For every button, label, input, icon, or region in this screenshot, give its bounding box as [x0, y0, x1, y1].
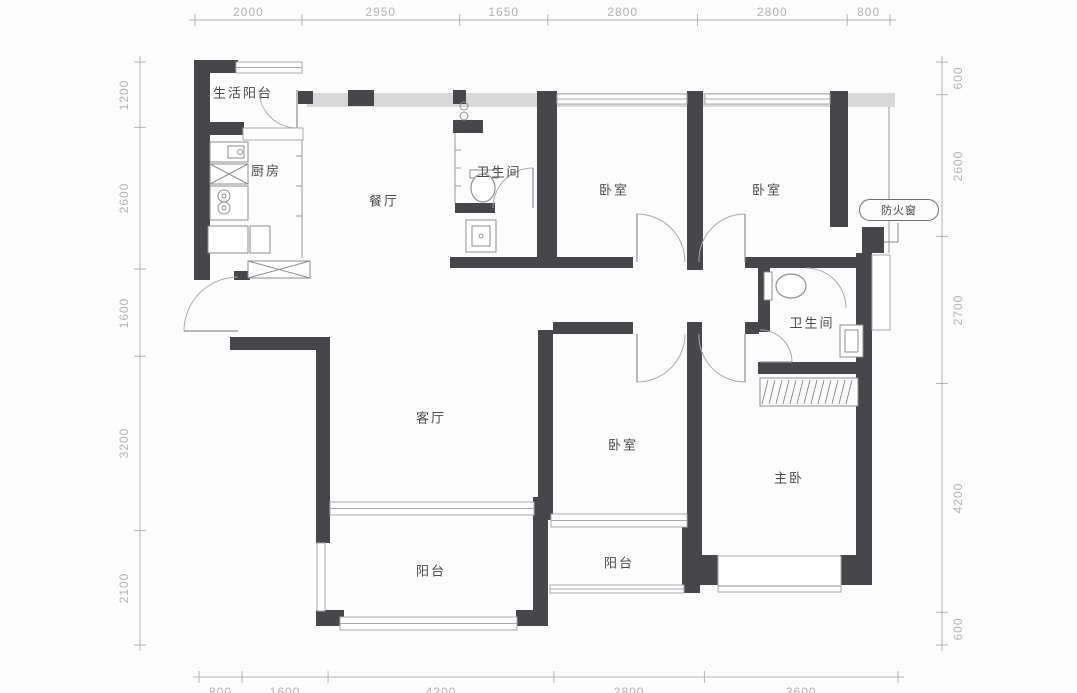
dimension-label-right: 2700: [951, 295, 965, 326]
wall-segment: [687, 91, 703, 270]
wall-segment: [688, 555, 718, 585]
wall-segment: [194, 60, 238, 73]
wall-segment: [840, 555, 872, 585]
fixture: [472, 226, 490, 246]
room-label-service-balcony: 生活阳台: [213, 83, 273, 102]
room-label-bedroom-3: 卧室: [608, 435, 638, 454]
wall-segment: [553, 322, 633, 334]
wall-segment: [537, 91, 557, 267]
wall-segment: [538, 330, 553, 520]
dimension-label-bottom: 800: [209, 685, 232, 693]
fixture: [845, 330, 858, 352]
room-label-kitchen: 厨房: [251, 161, 281, 180]
dimension-label-left: 2600: [117, 183, 131, 214]
dimension-label-top: 2950: [365, 5, 396, 19]
fire-window-annotation: 防火窗: [859, 199, 939, 221]
wall-segment: [450, 257, 633, 268]
floor-plan-drawing: [0, 0, 1077, 693]
fixture: [764, 272, 772, 300]
wall-segment: [533, 497, 548, 617]
dimension-label-bottom: 2800: [614, 685, 645, 693]
window: [243, 128, 303, 140]
room-label-living-room: 客厅: [416, 408, 446, 427]
room-label-balcony-1: 阳台: [416, 561, 446, 580]
dimension-label-top: 2800: [607, 5, 638, 19]
wall-segment: [745, 322, 759, 334]
fixture: [208, 226, 248, 253]
room-label-bedroom-1: 卧室: [599, 180, 629, 199]
room-label-bedroom-2: 卧室: [752, 180, 782, 199]
window: [317, 543, 325, 611]
dimension-label-left: 1200: [117, 79, 131, 110]
door-arc: [760, 330, 792, 362]
burner-circle: [460, 112, 468, 120]
dimension-label-top: 2000: [233, 5, 264, 19]
wall-segment: [830, 91, 848, 227]
wall-segment: [298, 91, 313, 104]
door-arc: [184, 277, 238, 331]
wall-segment: [862, 227, 884, 253]
door-arc: [699, 334, 745, 382]
wall-segment: [316, 337, 330, 497]
wall-segment: [455, 203, 495, 213]
dimension-label-left: 2100: [117, 572, 131, 603]
wall-segment: [758, 362, 872, 374]
room-label-master-bedroom: 主卧: [774, 468, 804, 487]
door-arc: [637, 214, 685, 262]
wall-segment: [687, 322, 702, 558]
fixture: [210, 186, 248, 220]
floor-plan: 生活阳台厨房餐厅卫生间卧室卧室卫生间客厅卧室主卧阳台阳台 20002950165…: [0, 0, 1077, 693]
wall-segment: [453, 120, 483, 133]
fire-window-leader: [884, 223, 898, 242]
dimension-label-right: 4200: [951, 483, 965, 514]
dimension-label-right: 600: [951, 617, 965, 640]
fixture: [250, 226, 270, 253]
room-label-dining-room: 餐厅: [369, 191, 399, 210]
dimension-label-top: 2800: [757, 5, 788, 19]
room-label-bathroom-2: 卫生间: [789, 313, 834, 332]
wall-segment: [194, 122, 244, 135]
dimension-label-bottom: 3600: [786, 685, 817, 693]
dimension-label-top: 800: [857, 5, 880, 19]
wall-segment: [348, 90, 374, 106]
door-arc: [806, 268, 846, 308]
dimension-label-right: 2600: [951, 150, 965, 181]
dimension-label-top: 1650: [488, 5, 519, 19]
wall-segment: [230, 337, 330, 350]
dimension-label-left: 1600: [117, 297, 131, 328]
fixture: [228, 146, 244, 158]
dimension-label-bottom: 4200: [426, 685, 457, 693]
toilet: [776, 274, 806, 298]
dimension-label-right: 600: [951, 67, 965, 90]
door-arc: [637, 334, 685, 382]
dimension-label-bottom: 1600: [270, 685, 301, 693]
door-arc: [699, 214, 745, 262]
wall-segment: [316, 497, 330, 543]
room-label-balcony-2: 阳台: [604, 553, 634, 572]
window: [872, 255, 890, 330]
dimension-label-left: 3200: [117, 428, 131, 459]
room-label-bathroom-1: 卫生间: [476, 162, 521, 181]
